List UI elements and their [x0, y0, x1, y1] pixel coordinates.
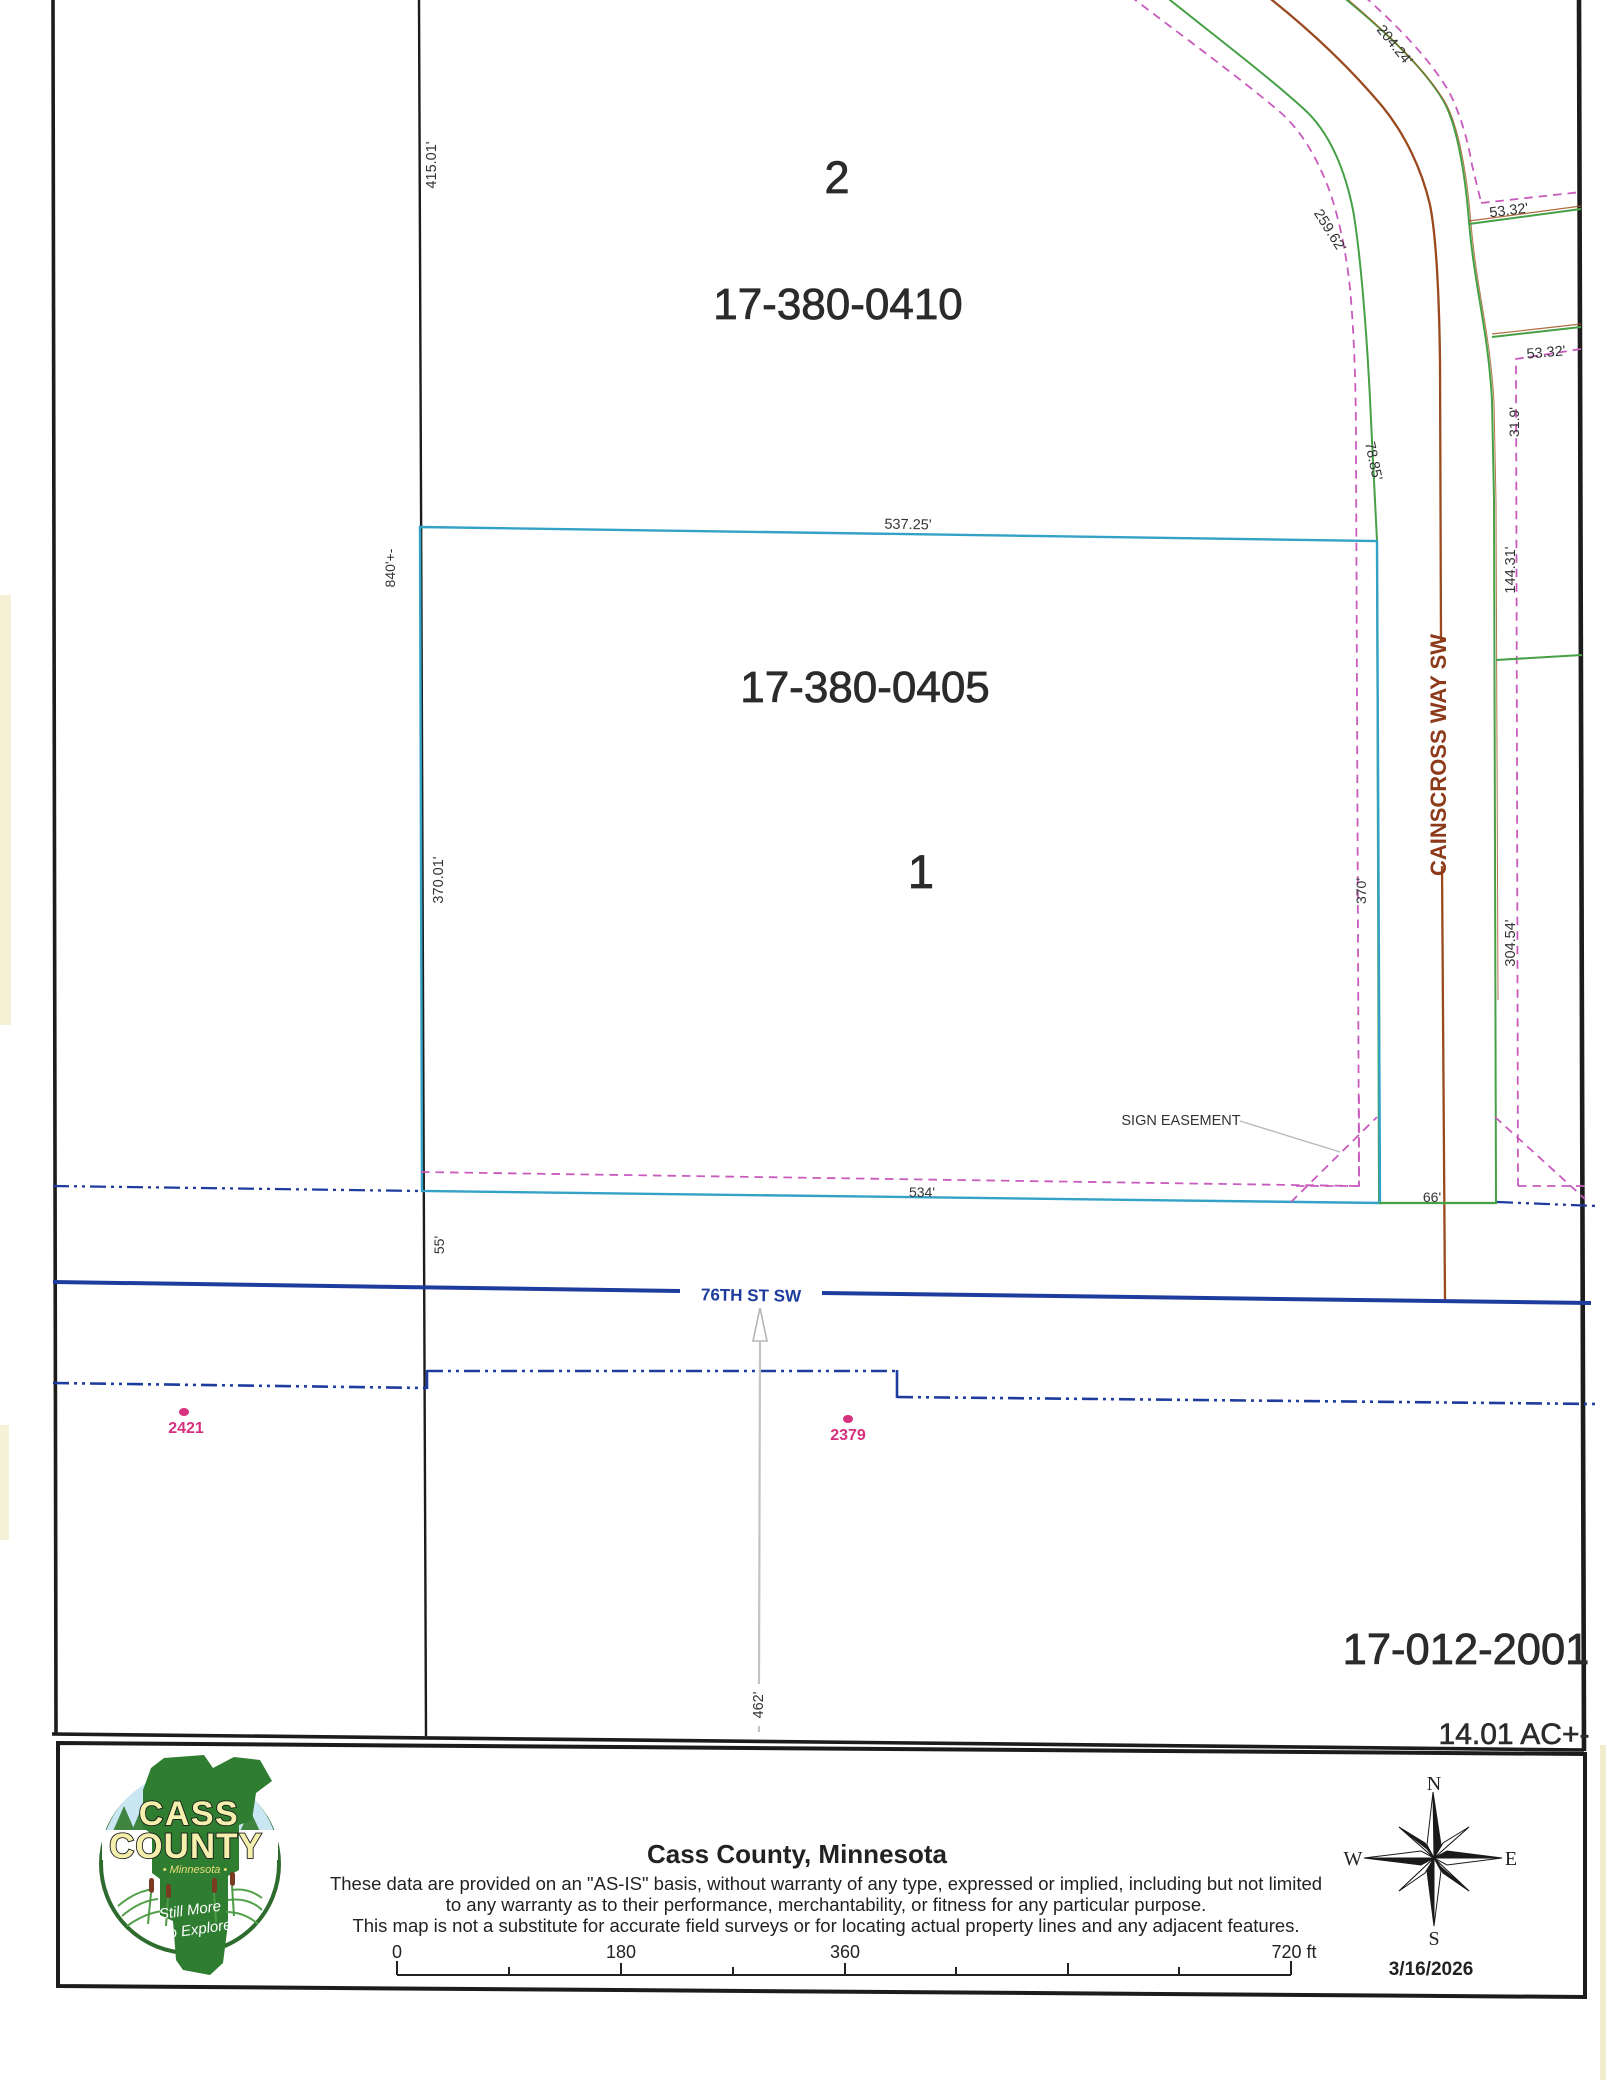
svg-text:370.01': 370.01' — [431, 856, 447, 903]
svg-text:462': 462' — [751, 1691, 767, 1718]
svg-text:2: 2 — [824, 152, 849, 203]
svg-text:144.31': 144.31' — [1503, 546, 1519, 593]
svg-text:534': 534' — [909, 1184, 935, 1200]
svg-text:This map is not a substitute f: This map is not a substitute for accurat… — [352, 1915, 1299, 1936]
svg-text:2379: 2379 — [830, 1427, 866, 1444]
svg-text:55': 55' — [431, 1236, 447, 1254]
svg-text:537.25': 537.25' — [884, 517, 932, 534]
svg-text:to any warranty as to their pe: to any warranty as to their performance,… — [446, 1894, 1207, 1915]
svg-text:53.32': 53.32' — [1526, 343, 1567, 362]
svg-text:3/16/2026: 3/16/2026 — [1389, 1959, 1474, 1980]
svg-text:2421: 2421 — [168, 1420, 204, 1437]
svg-text:304.54': 304.54' — [1503, 919, 1519, 966]
svg-text:SIGN EASEMENT: SIGN EASEMENT — [1121, 1113, 1240, 1129]
svg-text:17-380-0410: 17-380-0410 — [713, 280, 963, 329]
svg-text:17-012-2001: 17-012-2001 — [1343, 1626, 1590, 1674]
svg-text:370': 370' — [1353, 878, 1369, 904]
svg-text:CAINSCROSS WAY SW: CAINSCROSS WAY SW — [1426, 634, 1451, 876]
svg-text:415.01': 415.01' — [424, 141, 440, 188]
svg-text:840'+-: 840'+- — [382, 548, 398, 587]
svg-text:76TH ST SW: 76TH ST SW — [701, 1285, 802, 1305]
svg-text:S: S — [1428, 1928, 1439, 1950]
svg-text:• Minnesota •: • Minnesota • — [163, 1864, 228, 1876]
svg-text:W: W — [1344, 1848, 1363, 1870]
svg-text:31.9': 31.9' — [1506, 407, 1522, 437]
svg-text:These data are provided on an: These data are provided on an "AS-IS" ba… — [330, 1873, 1322, 1894]
svg-text:180: 180 — [606, 1942, 636, 1962]
svg-text:Cass County, Minnesota: Cass County, Minnesota — [647, 1839, 948, 1869]
svg-text:66': 66' — [1423, 1189, 1441, 1205]
svg-text:14.01 AC+-: 14.01 AC+- — [1439, 1718, 1590, 1751]
svg-text:COUNTY: COUNTY — [109, 1827, 263, 1866]
svg-text:0: 0 — [392, 1942, 402, 1962]
svg-text:720 ft: 720 ft — [1271, 1942, 1316, 1962]
svg-text:E: E — [1505, 1848, 1517, 1870]
svg-text:17-380-0405: 17-380-0405 — [740, 663, 990, 712]
svg-text:360: 360 — [830, 1942, 860, 1962]
svg-text:1: 1 — [908, 845, 934, 898]
svg-text:N: N — [1427, 1773, 1441, 1795]
